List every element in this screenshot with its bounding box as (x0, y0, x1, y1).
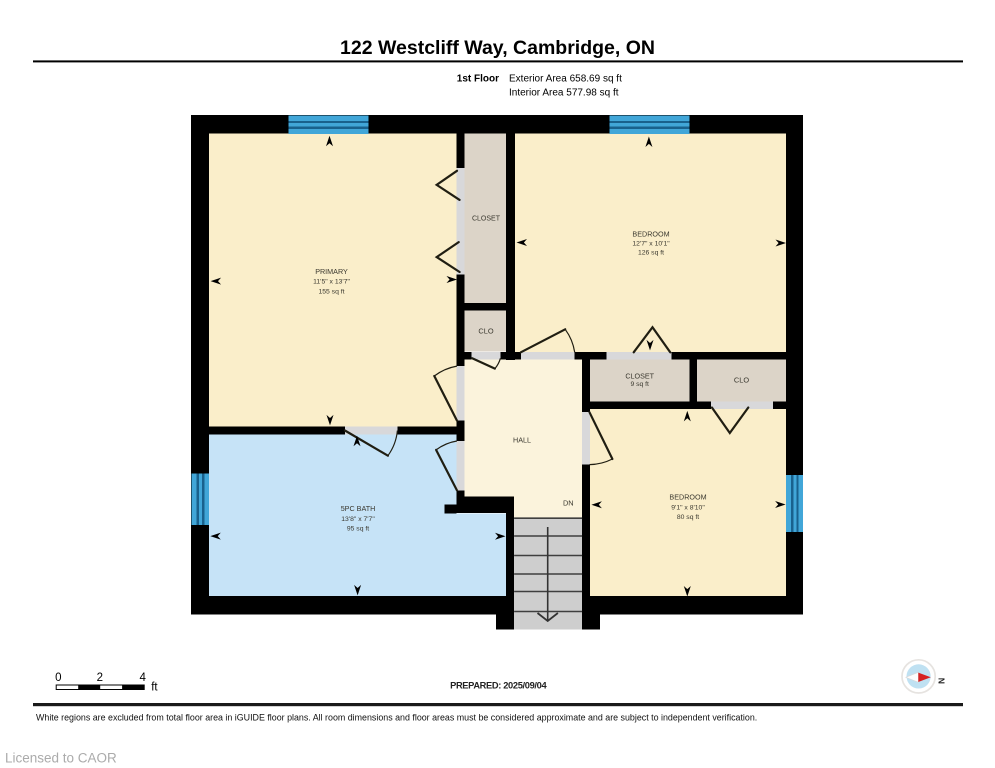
svg-text:CLOSET: CLOSET (625, 372, 654, 381)
svg-text:80 sq ft: 80 sq ft (677, 514, 699, 521)
svg-text:White regions are excluded fro: White regions are excluded from total fl… (36, 712, 757, 722)
svg-text:155 sq ft: 155 sq ft (318, 289, 344, 296)
svg-text:HALL: HALL (513, 436, 531, 445)
svg-text:122 Westcliff Way, Cambridge,: 122 Westcliff Way, Cambridge, ON (340, 37, 655, 59)
svg-text:Licensed to CAOR: Licensed to CAOR (5, 751, 117, 766)
svg-text:13'8" x 7'7": 13'8" x 7'7" (341, 516, 375, 523)
svg-text:Interior Area 577.98 sq ft: Interior Area 577.98 sq ft (509, 87, 619, 98)
svg-text:126 sq ft: 126 sq ft (638, 250, 664, 257)
svg-text:95 sq ft: 95 sq ft (347, 526, 369, 533)
svg-text:CLO: CLO (478, 327, 493, 336)
svg-text:9 sq ft: 9 sq ft (630, 381, 649, 388)
svg-text:N: N (936, 678, 946, 684)
svg-text:5PC BATH: 5PC BATH (341, 504, 376, 513)
svg-text:11'5" x 13'7": 11'5" x 13'7" (313, 279, 350, 286)
svg-text:BEDROOM: BEDROOM (669, 493, 706, 502)
svg-text:12'7" x 10'1": 12'7" x 10'1" (632, 241, 670, 248)
svg-text:Exterior Area 658.69 sq ft: Exterior Area 658.69 sq ft (509, 73, 622, 84)
svg-text:0: 0 (55, 672, 61, 684)
svg-text:PRIMARY: PRIMARY (315, 267, 348, 276)
svg-text:CLOSET: CLOSET (472, 216, 501, 223)
svg-text:DN: DN (563, 498, 574, 507)
svg-text:2: 2 (97, 672, 103, 684)
svg-text:4: 4 (139, 672, 146, 684)
svg-text:PREPARED: 2025/09/04: PREPARED: 2025/09/04 (450, 681, 547, 691)
svg-text:ft: ft (151, 682, 158, 694)
svg-text:1st Floor: 1st Floor (457, 73, 499, 84)
svg-text:BEDROOM: BEDROOM (632, 229, 669, 238)
svg-text:CLO: CLO (734, 376, 749, 385)
svg-text:9'1" x 8'10": 9'1" x 8'10" (671, 505, 705, 512)
